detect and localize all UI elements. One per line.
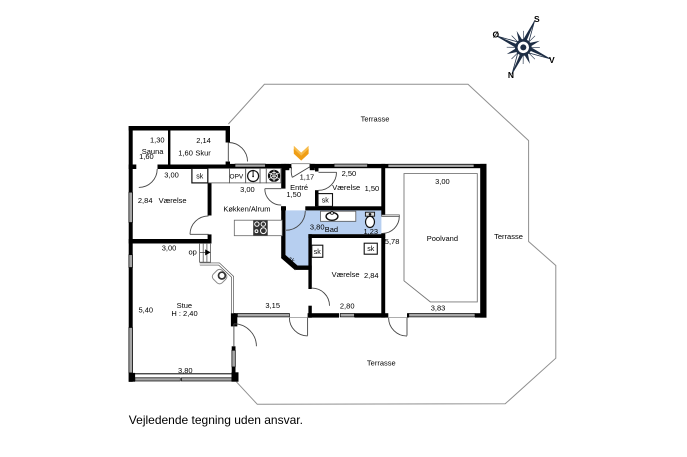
svg-text:sk: sk (314, 249, 322, 256)
svg-text:Entré: Entré (290, 183, 308, 192)
svg-text:OPV: OPV (230, 174, 244, 181)
svg-text:3,80: 3,80 (178, 366, 193, 375)
svg-text:Bad: Bad (325, 225, 338, 234)
svg-text:5,40: 5,40 (138, 305, 153, 314)
svg-text:1,60: 1,60 (178, 149, 193, 158)
svg-text:sk: sk (196, 174, 204, 181)
svg-text:3,15: 3,15 (265, 301, 280, 310)
svg-text:3,00: 3,00 (240, 185, 255, 194)
svg-text:1,50: 1,50 (365, 184, 380, 193)
svg-text:Sauna: Sauna (142, 147, 165, 156)
svg-text:1,23: 1,23 (363, 227, 378, 236)
svg-text:2,50: 2,50 (342, 169, 357, 178)
svg-text:5,78: 5,78 (385, 237, 400, 246)
svg-text:V: V (549, 55, 555, 65)
svg-text:Terrasse: Terrasse (361, 115, 390, 124)
svg-text:Værelse: Værelse (159, 196, 187, 205)
svg-text:3,83: 3,83 (431, 303, 446, 312)
svg-text:op: op (189, 248, 197, 257)
svg-text:Køkken/Alrum: Køkken/Alrum (223, 204, 270, 213)
svg-text:2,84: 2,84 (138, 196, 153, 205)
svg-text:Terrasse: Terrasse (494, 232, 523, 241)
svg-text:Terrasse: Terrasse (367, 359, 396, 368)
svg-text:Værelse: Værelse (332, 183, 360, 192)
svg-text:3,00: 3,00 (164, 170, 179, 179)
svg-text:sk: sk (322, 197, 330, 204)
svg-text:2,80: 2,80 (340, 301, 355, 310)
svg-text:1,17: 1,17 (300, 172, 315, 181)
svg-text:3,80: 3,80 (310, 223, 325, 232)
svg-text:2,14: 2,14 (196, 136, 211, 145)
svg-text:Vejledende tegning uden ansvar: Vejledende tegning uden ansvar. (129, 413, 303, 427)
svg-text:S: S (534, 14, 540, 24)
svg-text:2,84: 2,84 (364, 271, 379, 280)
svg-text:3,00: 3,00 (162, 243, 177, 252)
svg-text:H : 2,40: H : 2,40 (171, 309, 197, 318)
svg-text:Skur: Skur (195, 149, 211, 158)
svg-text:1,30: 1,30 (150, 136, 165, 145)
svg-text:sk: sk (367, 246, 375, 253)
svg-text:Værelse: Værelse (332, 270, 360, 279)
svg-text:Ø: Ø (492, 29, 499, 39)
svg-text:N: N (508, 70, 514, 80)
svg-text:Poolvand: Poolvand (427, 234, 458, 243)
svg-text:3,00: 3,00 (435, 177, 450, 186)
